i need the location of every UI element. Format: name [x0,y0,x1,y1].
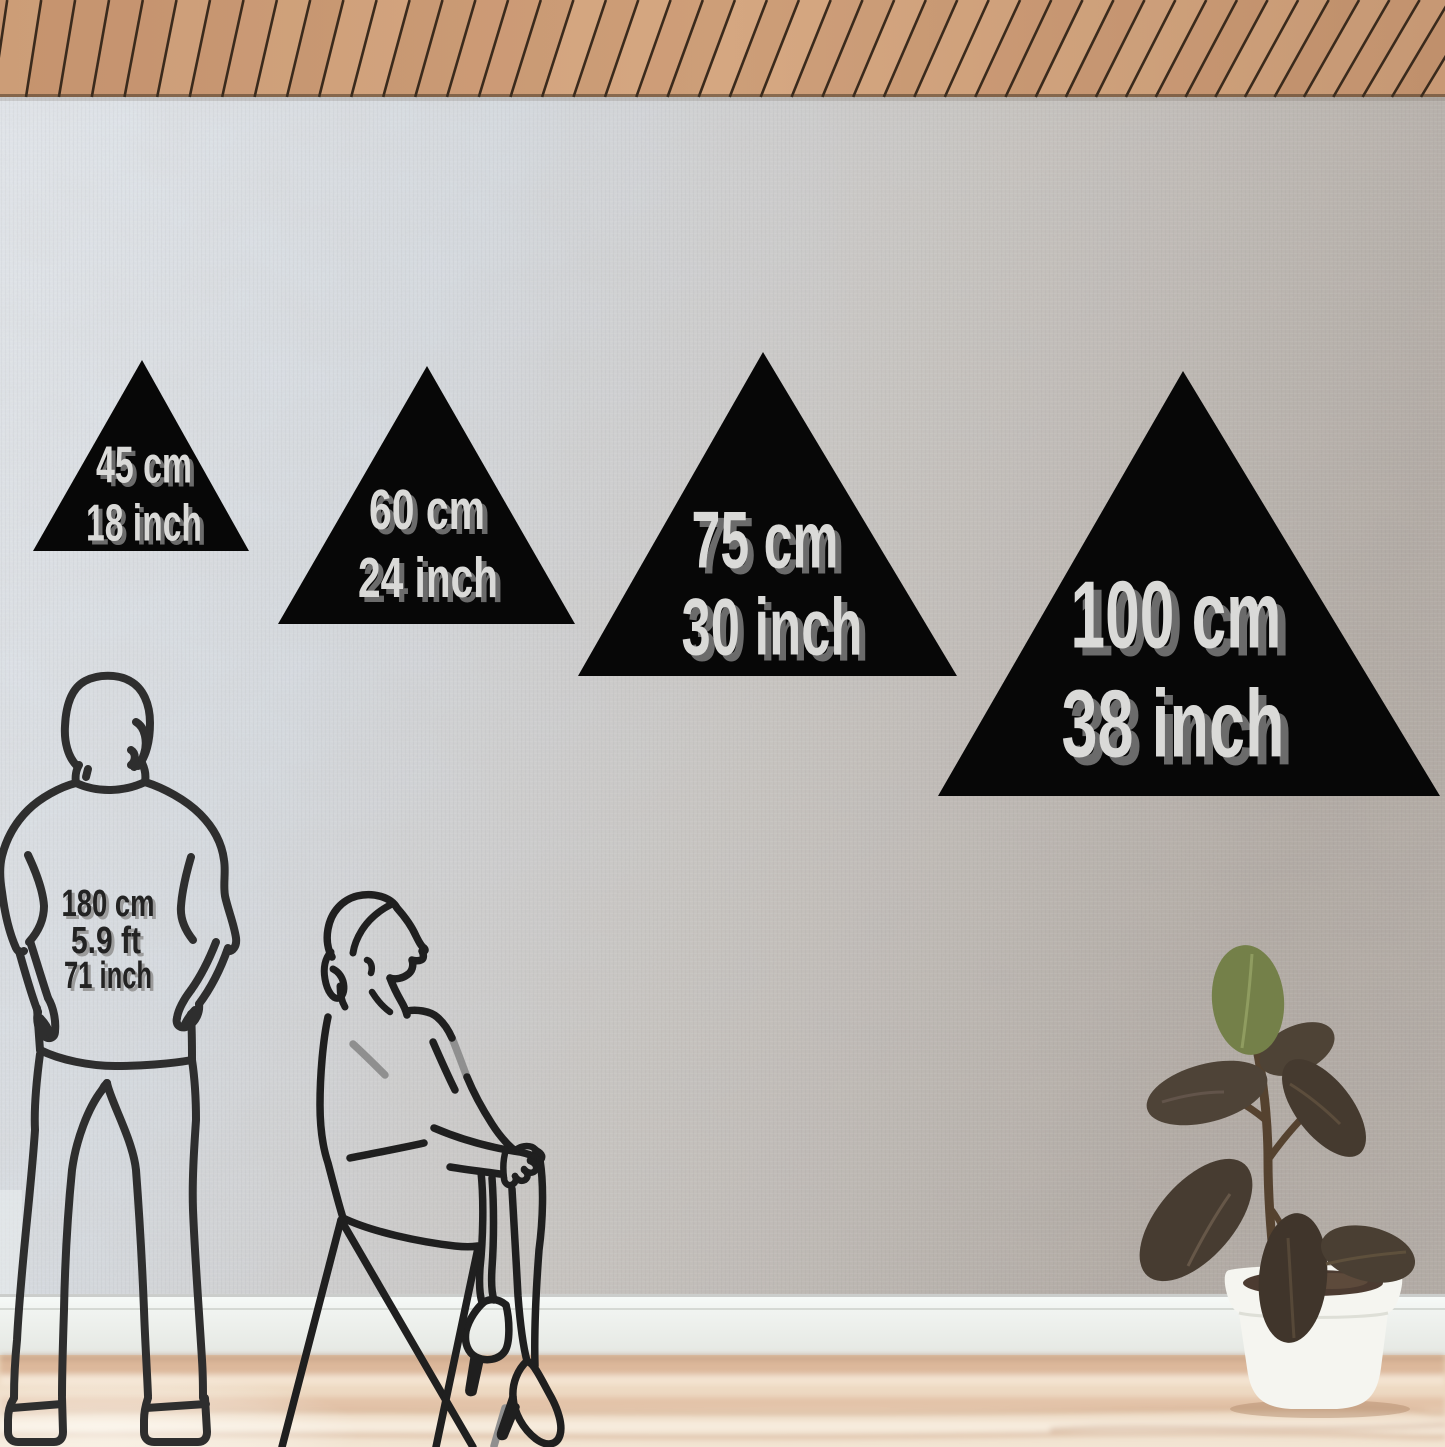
svg-text:75 cm: 75 cm [692,495,839,585]
svg-text:18 inch: 18 inch [86,495,202,553]
svg-text:180 cm: 180 cm [62,883,155,925]
svg-text:100 cm: 100 cm [1071,561,1282,668]
svg-text:24 inch: 24 inch [358,546,498,610]
svg-text:30 inch: 30 inch [682,582,863,672]
svg-text:60 cm: 60 cm [369,478,485,542]
svg-text:45 cm: 45 cm [96,437,192,495]
svg-text:38 inch: 38 inch [1062,670,1285,777]
svg-text:71 inch: 71 inch [64,955,152,997]
